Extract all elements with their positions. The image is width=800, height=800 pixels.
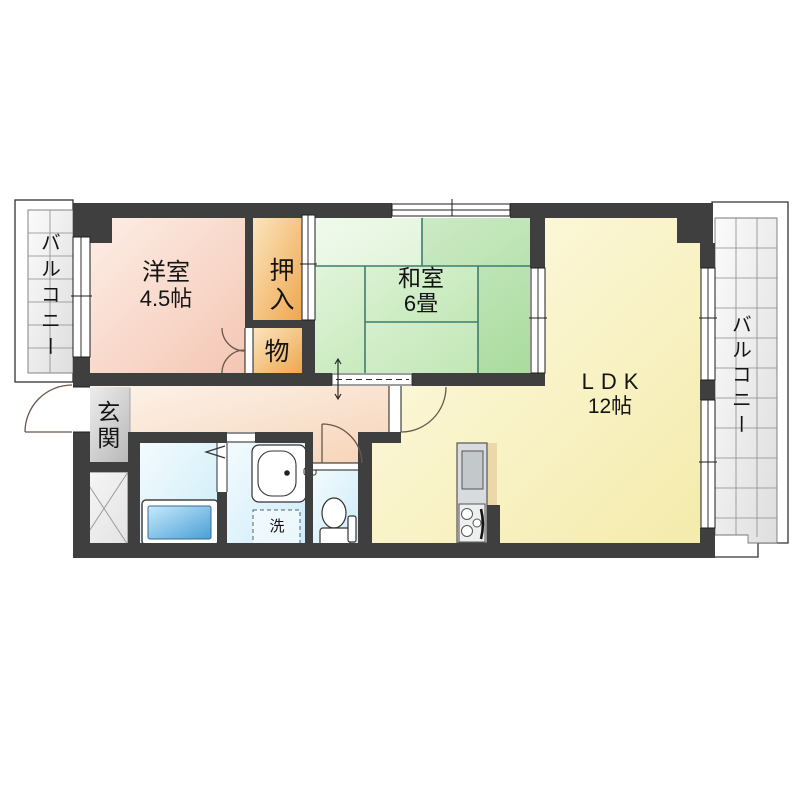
toilet-door-opening xyxy=(313,463,358,470)
label-genkan: 玄関 xyxy=(93,391,119,461)
washroom-opening xyxy=(227,432,255,443)
floorplan-drawing xyxy=(0,0,800,800)
entrance-door-swing xyxy=(25,385,72,432)
room-name: 洋室 xyxy=(142,259,190,286)
floorplan-canvas: 洋室 4.5帖 和室 6畳 LDK 12帖 押入 物 玄関 洗 バルコニー バル… xyxy=(0,0,800,800)
bathroom-folding-door xyxy=(217,443,227,492)
label-balcony-left: バルコニー xyxy=(37,222,59,372)
room-size: 4.5帖 xyxy=(96,287,236,312)
label-mono: 物 xyxy=(247,338,307,366)
label-washitsu: 和室 6畳 xyxy=(351,266,491,316)
entrance-opening xyxy=(73,387,90,432)
label-yoshitsu: 洋室 4.5帖 xyxy=(96,260,236,312)
room-name: 和室 xyxy=(398,265,444,291)
ldk-door-opening xyxy=(389,386,401,432)
bathtub-icon xyxy=(142,500,218,545)
room-size: 12帖 xyxy=(540,395,680,419)
label-balcony-right: バルコニー xyxy=(728,306,750,446)
label-ldk: LDK 12帖 xyxy=(540,370,680,418)
room-name: LDK xyxy=(575,369,646,394)
label-laundry: 洗 xyxy=(254,519,300,536)
fusuma-oshiire xyxy=(302,215,315,320)
label-oshiire: 押入 xyxy=(266,236,294,336)
room-size: 6畳 xyxy=(351,292,491,317)
